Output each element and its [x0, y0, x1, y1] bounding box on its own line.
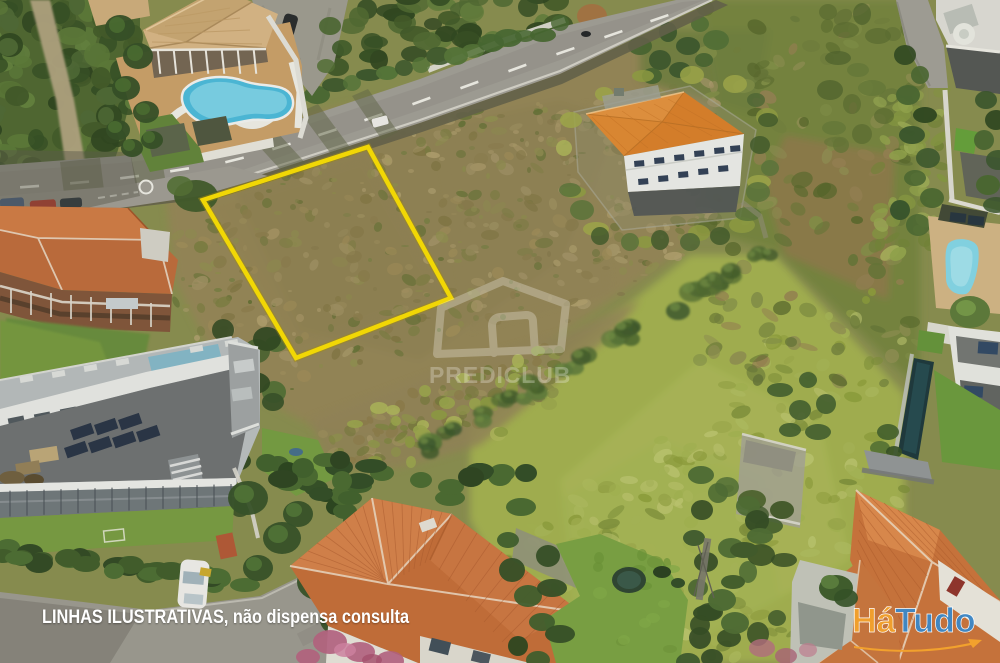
- svg-text:Há: Há: [852, 602, 896, 640]
- svg-text:Tudo: Tudo: [895, 602, 976, 640]
